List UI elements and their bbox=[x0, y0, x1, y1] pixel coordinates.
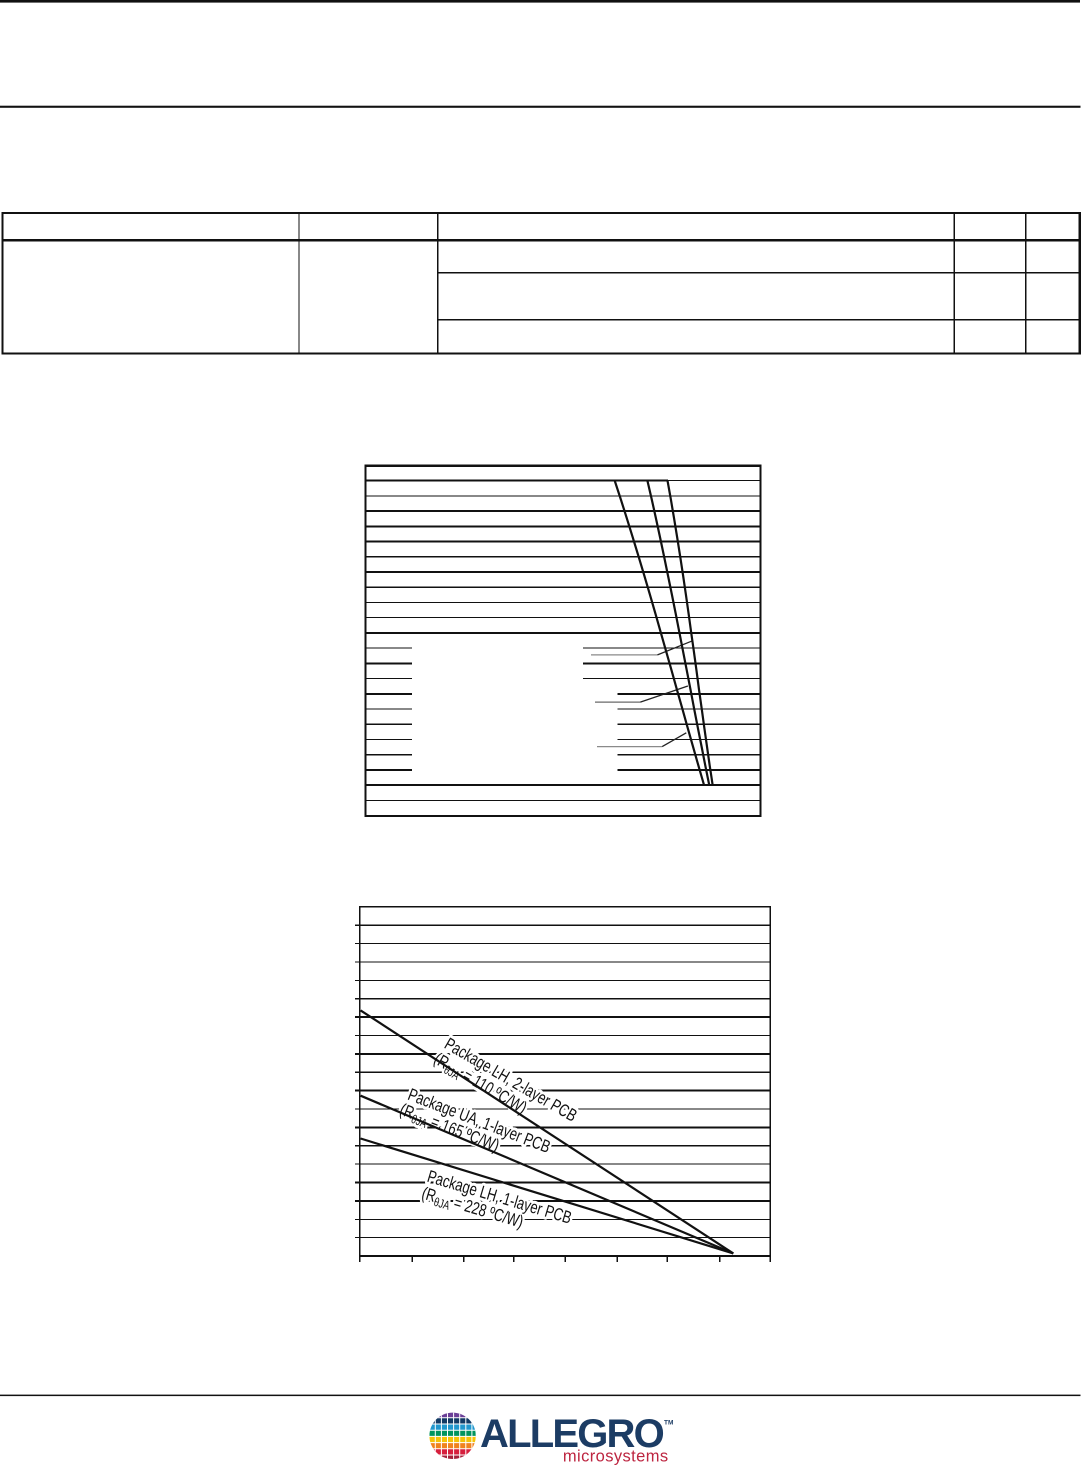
svg-text:TM: TM bbox=[664, 1420, 673, 1427]
svg-text:microsystems: microsystems bbox=[563, 1448, 669, 1466]
